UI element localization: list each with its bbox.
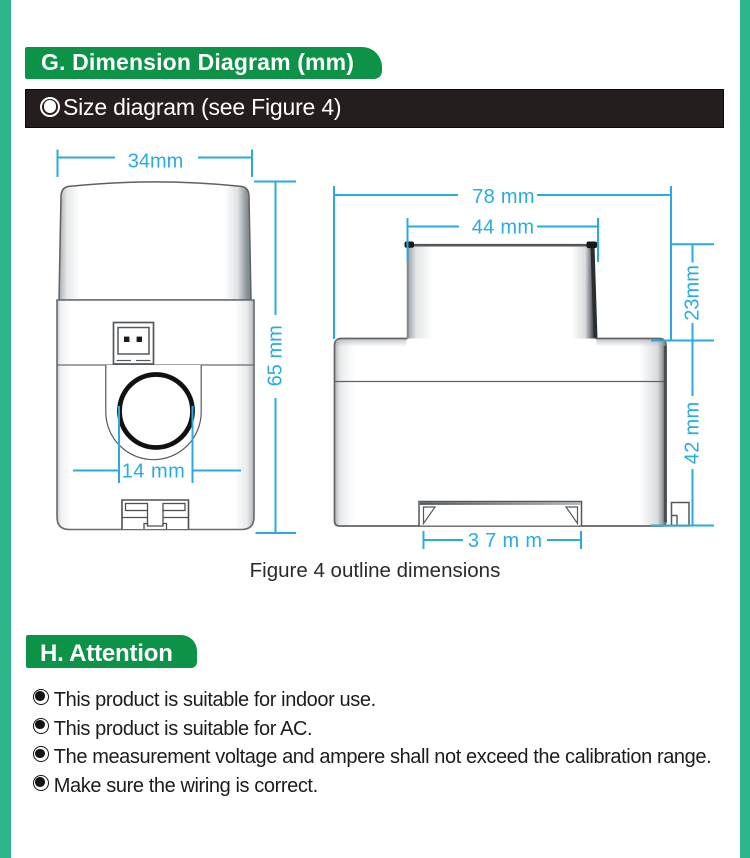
svg-text:23mm: 23mm xyxy=(682,265,704,321)
svg-text:42 mm: 42 mm xyxy=(682,402,704,465)
svg-text:44 mm: 44 mm xyxy=(472,216,535,238)
svg-text:14 mm: 14 mm xyxy=(122,460,186,482)
svg-text:34mm: 34mm xyxy=(128,150,184,172)
svg-text:65 mm: 65 mm xyxy=(265,325,287,386)
svg-text:37mm: 37mm xyxy=(468,530,548,552)
svg-text:78 mm: 78 mm xyxy=(472,186,535,208)
